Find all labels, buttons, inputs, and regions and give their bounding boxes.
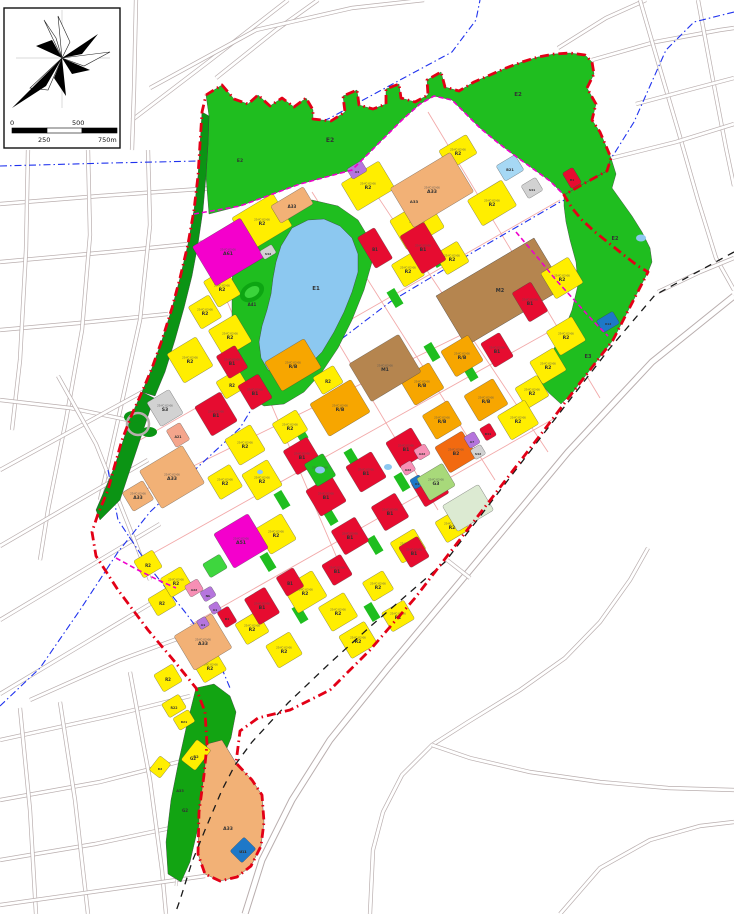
- zone-label: E2: [514, 92, 522, 98]
- parcel-code: 25-YC-02-06: [450, 148, 466, 152]
- parcel-label: R2: [449, 257, 456, 263]
- scale-label-750: 750m: [98, 136, 117, 144]
- parcel-label: B2: [453, 451, 460, 457]
- scale-segment: [47, 128, 82, 133]
- parcel-code: 25-YC-02-06: [382, 508, 398, 512]
- parcel-label: B1: [259, 605, 266, 611]
- compass-box: 0 500 250 750m: [4, 8, 120, 148]
- parcel-label: R2: [365, 185, 372, 191]
- parcel-code: 25-YC-02-06: [276, 646, 292, 650]
- parcel-code: 25-YC-02-06: [524, 388, 540, 392]
- parcel-label: B1: [570, 178, 574, 182]
- parcel-label: A1: [201, 623, 205, 627]
- parcel-label: B1: [372, 247, 378, 252]
- parcel-label: A22: [405, 468, 412, 472]
- parcel-code: 25-YC-02-06: [510, 416, 526, 420]
- scale-label-0: 0: [10, 119, 14, 127]
- pond: [315, 467, 325, 474]
- parcel-label: R2: [273, 533, 280, 539]
- parcel-label: R2: [222, 481, 229, 487]
- parcel-label: R2: [375, 585, 381, 591]
- parcel-code: 25-YC-02-06: [414, 380, 430, 384]
- parcel-label: R2: [159, 601, 165, 606]
- parcel-label: R/B: [418, 383, 427, 389]
- parcel-code: 25-YC-02-06: [294, 452, 310, 456]
- parcel-label: R2: [563, 335, 570, 341]
- parcel-label: R2: [145, 563, 151, 568]
- scale-label-250: 250: [38, 136, 50, 144]
- parcel-label: A22: [419, 452, 426, 456]
- parcel-code: 25-YC-02-06: [285, 361, 301, 365]
- parcel-code: 25-YC-02-06: [428, 478, 444, 482]
- parcel-label: R/B: [336, 407, 345, 413]
- pond: [257, 470, 263, 474]
- parcel-code: 25-YC-02-06: [222, 332, 238, 336]
- parcel-code: 25-YC-02-06: [484, 199, 500, 203]
- parcel-code: 25-YC-02-06: [478, 396, 494, 400]
- parcel-label: S42: [265, 252, 271, 256]
- parcel-label: S3: [162, 407, 169, 413]
- parcel-label: R2: [545, 365, 552, 371]
- parcel-code: 25-YC-02-06: [415, 244, 431, 248]
- parcel-code: 25-YC-02-06: [217, 478, 233, 482]
- parcel-code: 25-YC-02-06: [360, 182, 376, 186]
- parcel-label: R2: [187, 359, 194, 365]
- zone-label: M2: [496, 288, 505, 294]
- parcel-code: 25-YC-02-06: [208, 410, 224, 414]
- parcel-code: 25-YC-02-06: [282, 423, 298, 427]
- parcel-label: S42: [475, 452, 481, 456]
- parcel-label: A22: [191, 588, 198, 592]
- parcel-label: B1: [323, 495, 330, 501]
- parcel-code: 25-YC-02-06: [400, 266, 416, 270]
- parcel-label: A33: [198, 641, 208, 647]
- parcel-label: R22: [171, 706, 178, 710]
- parcel-code: 25-YC-02-06: [247, 388, 263, 392]
- parcel-code: 25-YC-02-06: [454, 352, 470, 356]
- parcel-label: A4: [355, 170, 359, 174]
- parcel-label: R2: [242, 444, 249, 450]
- parcel-code: 25-YC-02-06: [377, 364, 393, 368]
- parcel-label: R2: [158, 767, 162, 771]
- parcel-code: 25-YC-02-06: [329, 566, 345, 570]
- parcel-label: B1: [527, 301, 533, 307]
- land-use-planning-map: 25-YC-02-06R225-YC-02-06R2R225-YC-02-06R…: [0, 0, 734, 914]
- parcel-label: R2: [529, 391, 536, 397]
- parcel-label: B1: [420, 247, 427, 253]
- parcel-label: B1: [334, 569, 340, 575]
- parcel-label: R2: [165, 677, 171, 682]
- parcel-label: R/B: [482, 399, 491, 405]
- parcel-label: A33: [288, 204, 297, 209]
- parcel-label: R2: [515, 419, 522, 425]
- parcel-label: A51: [236, 540, 246, 546]
- zone-label: G2: [182, 808, 188, 813]
- parcel-code: 25-YC-02-06: [164, 473, 180, 477]
- pond: [384, 464, 392, 470]
- parcel-label: R2: [287, 426, 294, 432]
- scale-segment: [82, 128, 117, 133]
- parcel-code: 25-YC-02-06: [330, 608, 346, 612]
- parcel-code: 25-YC-02-06: [130, 492, 146, 496]
- parcel-code: 25-YC-02-06: [390, 612, 406, 616]
- parcel-code: 25-YC-02-06: [244, 624, 260, 628]
- parcel-code: 25-YC-02-06: [448, 448, 464, 452]
- parcel-label: R2: [325, 379, 331, 384]
- parcel-label: R2: [249, 627, 256, 633]
- parcel-code: 25-YC-02-06: [406, 548, 422, 552]
- parcel-label: B1: [213, 413, 220, 419]
- parcel-label: A33: [133, 495, 143, 501]
- parcel-code: 25-YC-02-06: [318, 492, 334, 496]
- parcel-label: U1: [415, 482, 420, 486]
- parcel-label: A7: [470, 440, 474, 444]
- parcel-label: R/B: [438, 419, 447, 425]
- parcel-label: A21: [175, 435, 182, 439]
- zone-label: A41: [248, 302, 257, 307]
- parcel-label: R2: [229, 383, 235, 388]
- parcel-label: U12: [605, 322, 612, 326]
- parcel-label: B1: [225, 617, 229, 621]
- parcel-label: B1: [229, 361, 235, 367]
- parcel-code: 25-YC-02-06: [558, 332, 574, 336]
- parcel-label: B1: [411, 551, 417, 557]
- parcel-label: R2: [219, 287, 226, 293]
- parcel-code: 25-YC-02-06: [268, 530, 284, 534]
- parcel-label: B1: [387, 511, 394, 517]
- parcel-label: R21: [181, 720, 188, 724]
- parcel-label: R2: [173, 581, 179, 587]
- parcel-code: 25-YC-02-06: [157, 404, 173, 408]
- parcel-code: 25-YC-02-06: [332, 404, 348, 408]
- parcel-label: B1: [363, 471, 370, 477]
- parcel-label: A1: [213, 608, 217, 612]
- parcel-code: 25-YC-02-06: [168, 578, 184, 582]
- parcel-label: A33: [167, 476, 177, 482]
- parcel-code: 25-YC-02-06: [540, 362, 556, 366]
- parcel-label: R2: [202, 311, 209, 317]
- scale-label-500: 500: [72, 119, 84, 127]
- parcel-code: 25-YC-02-06: [254, 218, 270, 222]
- parcel-code: 25-YC-02-06: [342, 532, 358, 536]
- parcel-label: R2: [302, 591, 309, 597]
- parcel-label: R2: [489, 202, 496, 208]
- zone-label: E1: [312, 286, 320, 292]
- parcel-code: 25-YC-02-06: [220, 248, 236, 252]
- zone-label: E2: [237, 158, 243, 164]
- parcel-label: B1: [347, 535, 354, 541]
- parcel-label: A61: [223, 251, 233, 257]
- zone-label: G2: [190, 756, 196, 761]
- parcel-label: B1: [299, 455, 306, 461]
- parcel-label: B1: [287, 581, 293, 586]
- zone-label: E2: [612, 236, 619, 242]
- zone-label: U11: [239, 850, 246, 854]
- parcel-code: 25-YC-02-06: [233, 537, 249, 541]
- parcel-label: R/B: [289, 364, 298, 370]
- planning-map-page: 25-YC-02-06R225-YC-02-06R2R225-YC-02-06R…: [0, 0, 734, 914]
- parcel-code: 25-YC-02-06: [424, 186, 440, 190]
- parcel-code: 25-YC-02-06: [254, 602, 270, 606]
- parcel-label: B41: [485, 432, 491, 436]
- parcel-label: B21: [506, 168, 514, 172]
- parcel-code: 25-YC-02-06: [358, 468, 374, 472]
- parcel-label: R2: [455, 151, 461, 157]
- zone-label: A33: [410, 199, 419, 204]
- parcel-label: B1: [403, 447, 410, 453]
- scale-segment: [12, 128, 47, 133]
- parcel-code: 25-YC-02-06: [197, 308, 213, 312]
- zone-label: A33: [223, 826, 233, 832]
- parcel-label: R2: [281, 649, 288, 655]
- parcel-code: 25-YC-02-06: [398, 444, 414, 448]
- parcel-label: B1: [494, 349, 500, 355]
- parcel-code: 25-YC-02-06: [182, 356, 198, 360]
- pond: [636, 235, 646, 242]
- parcel-code: 25-YC-02-06: [434, 416, 450, 420]
- parcel-label: R2: [259, 221, 266, 227]
- parcel-code: 25-YC-02-06: [224, 358, 240, 362]
- parcel-code: 25-YC-02-06: [554, 274, 570, 278]
- parcel-code: 25-YC-02-06: [195, 638, 211, 642]
- zone-label: E2: [326, 137, 334, 144]
- parcel-code: 25-YC-02-06: [444, 254, 460, 258]
- parcel-label: R2: [405, 269, 412, 275]
- parcel-label: M1: [381, 367, 389, 373]
- parcel-label: R/B: [458, 355, 467, 361]
- parcel-label: R2: [335, 611, 342, 617]
- parcel-label: R2: [207, 666, 213, 672]
- parcel-label: B1: [252, 391, 259, 397]
- parcel-label: R2: [227, 335, 234, 341]
- parcel-code: 25-YC-02-06: [237, 441, 253, 445]
- parcel-code: 25-YC-02-06: [254, 476, 270, 480]
- parcel-code: 25-YC-02-06: [370, 582, 386, 586]
- parcel-label: A33: [427, 189, 437, 195]
- parcel-code: 25-YC-02-06: [522, 298, 538, 302]
- parcel-label: G3: [433, 481, 440, 487]
- parcel-code: 25-YC-02-06: [350, 636, 366, 640]
- zone-label: E3: [585, 354, 592, 360]
- parcel-code: 25-YC-02-06: [489, 346, 505, 350]
- parcel-label: R2: [259, 479, 266, 485]
- parcel-label: R2: [559, 277, 566, 283]
- zone-label: A33: [176, 789, 184, 793]
- parcel-label: S41: [529, 188, 535, 192]
